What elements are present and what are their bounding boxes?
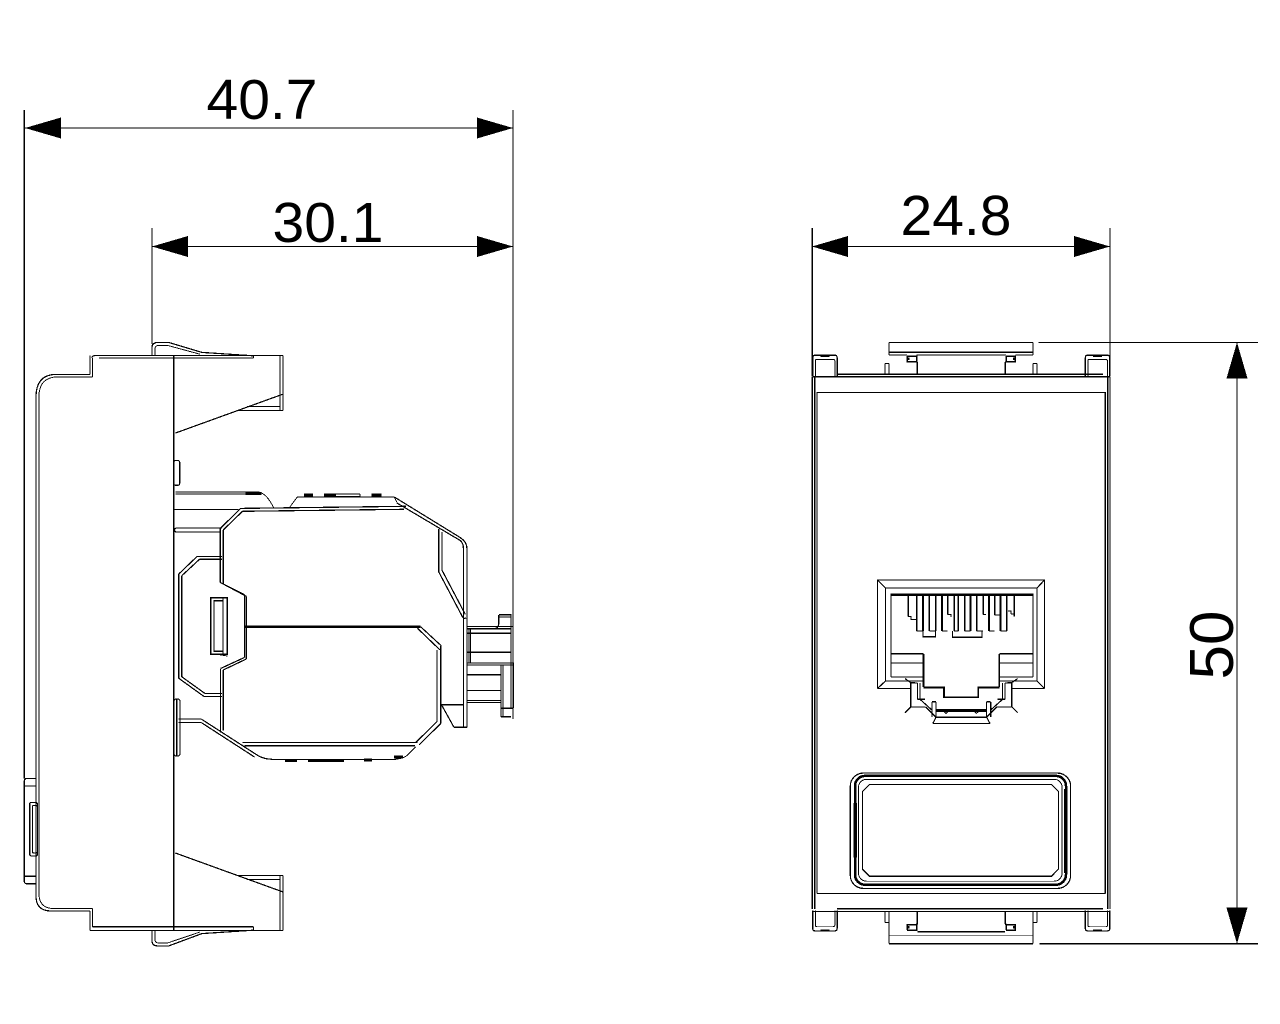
svg-text:40.7: 40.7 — [207, 68, 318, 132]
svg-text:30.1: 30.1 — [273, 191, 384, 255]
svg-text:24.8: 24.8 — [901, 184, 1012, 248]
